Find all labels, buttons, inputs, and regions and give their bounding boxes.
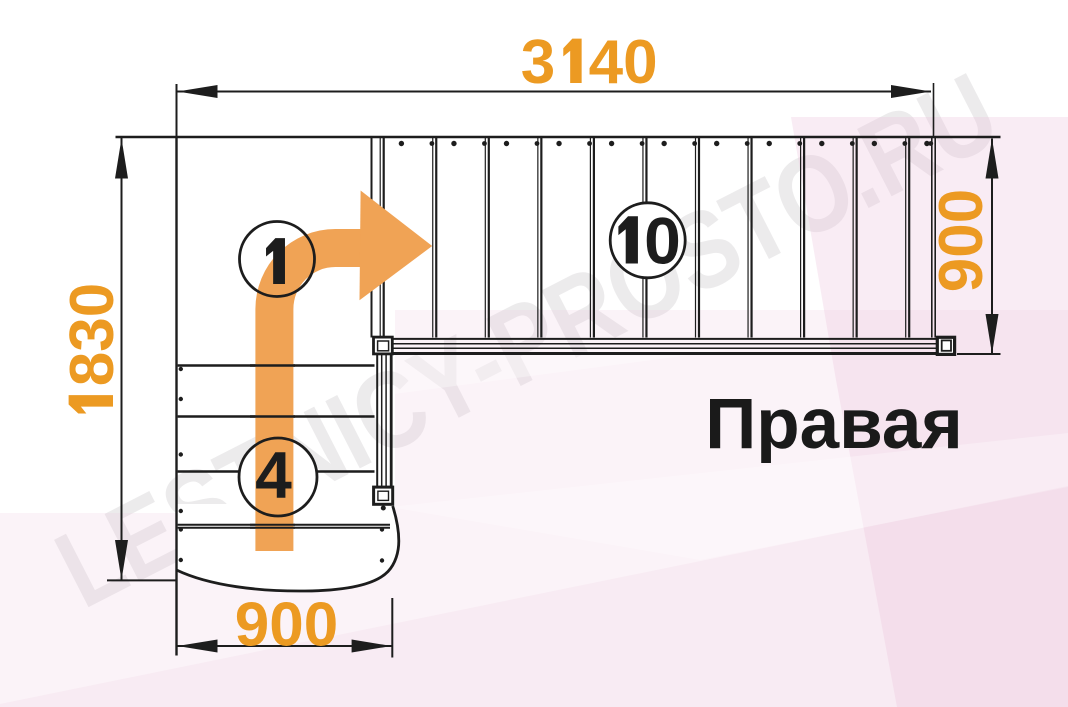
svg-text:40: 40 — [589, 28, 658, 97]
svg-text:Правая: Правая — [705, 385, 963, 464]
svg-text:4: 4 — [255, 438, 292, 512]
svg-text:900: 900 — [235, 591, 338, 660]
svg-text:3: 3 — [521, 28, 555, 97]
svg-text:830: 830 — [58, 283, 127, 386]
svg-text:0: 0 — [644, 204, 681, 278]
svg-text:900: 900 — [927, 189, 996, 292]
